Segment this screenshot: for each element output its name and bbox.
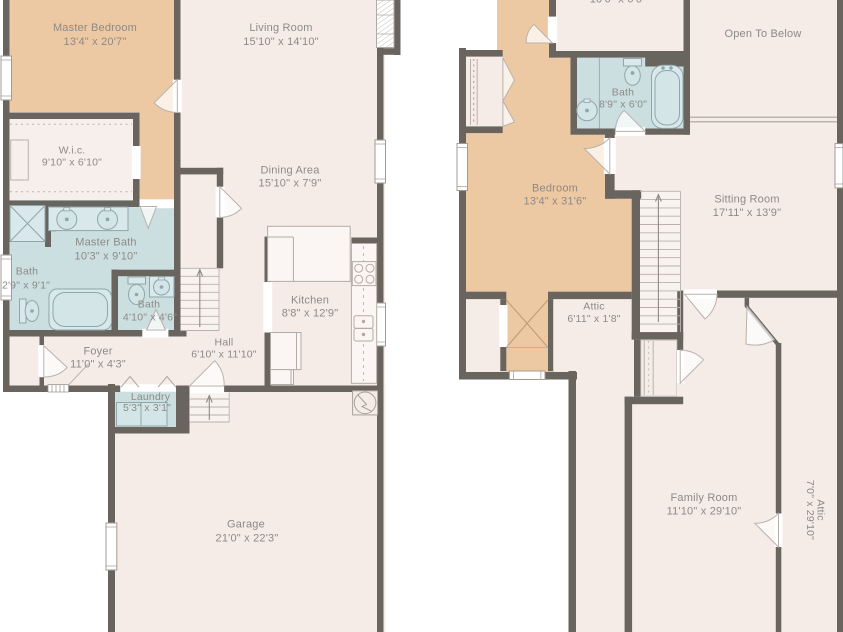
svg-text:13'4" x 20'7": 13'4" x 20'7": [64, 36, 127, 48]
svg-text:2'9" x 9'1": 2'9" x 9'1": [2, 280, 50, 292]
svg-text:Foyer: Foyer: [83, 346, 112, 358]
svg-text:10'0" x 6'0": 10'0" x 6'0": [590, 0, 647, 6]
svg-text:17'11" x 13'9": 17'11" x 13'9": [713, 207, 781, 219]
svg-text:6'11" x 1'8": 6'11" x 1'8": [567, 313, 620, 325]
svg-text:11'0" x 4'3": 11'0" x 4'3": [70, 359, 126, 371]
svg-text:Bath: Bath: [138, 299, 160, 311]
svg-text:9'10" x 6'10": 9'10" x 6'10": [42, 157, 102, 169]
svg-text:5'3" x 3'1": 5'3" x 3'1": [123, 402, 171, 414]
svg-text:Open To Below: Open To Below: [724, 28, 801, 40]
svg-text:4'10" x 4'6": 4'10" x 4'6": [123, 312, 177, 324]
svg-text:Sitting Room: Sitting Room: [714, 194, 779, 206]
svg-text:8'8" x 12'9": 8'8" x 12'9": [282, 308, 339, 320]
svg-text:Bath: Bath: [612, 87, 634, 99]
svg-text:Master Bath: Master Bath: [75, 237, 137, 249]
svg-text:W.i.c.: W.i.c.: [59, 145, 86, 157]
svg-text:13'4" x 31'6": 13'4" x 31'6": [524, 196, 587, 208]
svg-text:21'0" x 22'3": 21'0" x 22'3": [216, 533, 279, 545]
svg-text:8'9" x 6'0": 8'9" x 6'0": [599, 99, 647, 111]
svg-text:Hall: Hall: [215, 337, 234, 349]
svg-text:Dining Area: Dining Area: [260, 165, 320, 177]
svg-text:15'10" x 14'10": 15'10" x 14'10": [243, 36, 319, 48]
svg-text:Attic: Attic: [583, 301, 604, 313]
svg-text:11'10" x 29'10": 11'10" x 29'10": [667, 506, 742, 518]
svg-text:Garage: Garage: [227, 519, 265, 531]
svg-text:6'10" x 11'10": 6'10" x 11'10": [191, 349, 257, 361]
svg-text:Bedroom: Bedroom: [532, 183, 578, 195]
svg-text:Living Room: Living Room: [249, 22, 312, 34]
svg-text:Family Room: Family Room: [671, 492, 738, 504]
svg-text:Bath: Bath: [16, 266, 38, 278]
svg-text:Kitchen: Kitchen: [291, 295, 329, 307]
svg-text:Master Bedroom: Master Bedroom: [53, 22, 137, 34]
svg-text:10'3" x 9'10": 10'3" x 9'10": [75, 251, 138, 263]
svg-text:15'10" x 7'9": 15'10" x 7'9": [259, 178, 322, 190]
svg-text:7'0" x 29'10": 7'0" x 29'10": [804, 480, 816, 540]
